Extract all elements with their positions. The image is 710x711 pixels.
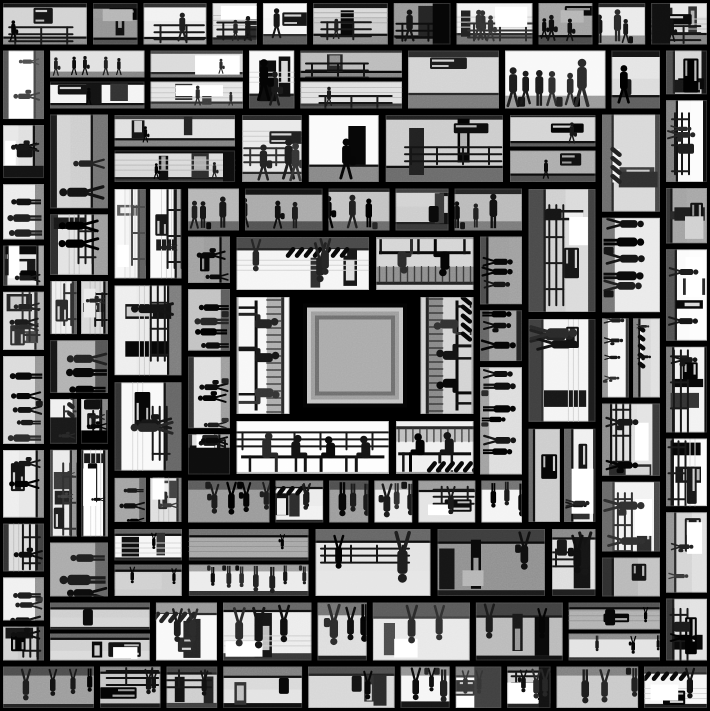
collage-canvas	[0, 0, 710, 711]
photo-collage-artwork	[0, 0, 710, 711]
